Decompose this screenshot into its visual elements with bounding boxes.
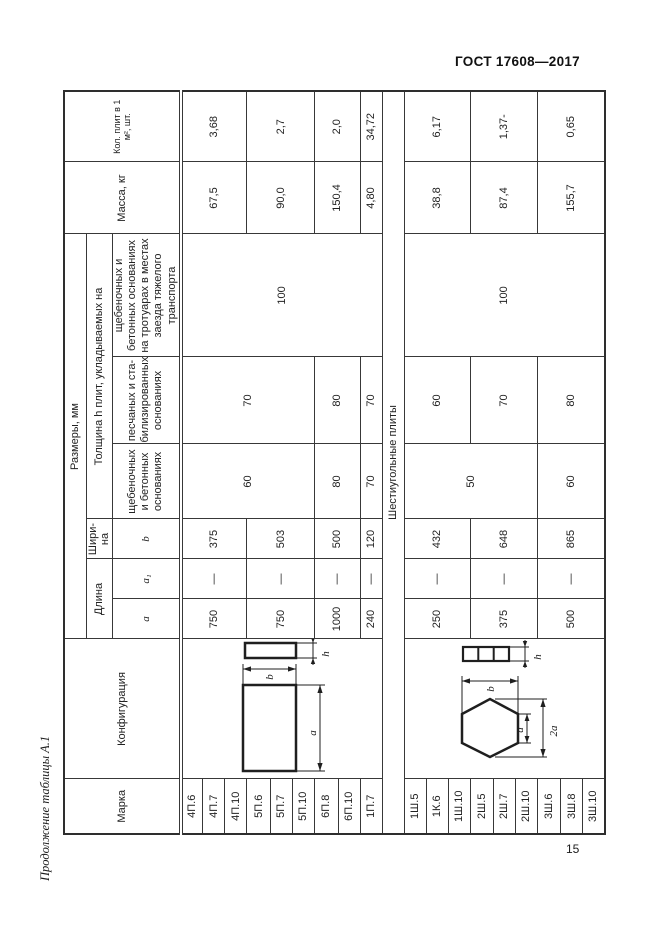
cell-count: 34,72 xyxy=(360,91,382,162)
mark-cell: 1Ш.10 xyxy=(448,779,470,834)
cell-a1: — xyxy=(360,559,382,599)
cell-thick-pesch: 70 xyxy=(360,357,382,444)
section-divider: Шестиугольные плиты xyxy=(382,91,404,834)
header-razmery: Размеры, мм xyxy=(64,234,86,639)
cell-thick-pesch: 60 xyxy=(404,357,470,444)
cell-a: 240 xyxy=(360,599,382,639)
cell-mass: 67,5 xyxy=(181,162,247,234)
cell-a: 750 xyxy=(247,599,315,639)
cell-thick-pesch: 80 xyxy=(537,357,604,444)
mark-cell: 2Ш.5 xyxy=(470,779,493,834)
dim-label-h: h xyxy=(320,651,332,657)
dim-label-a: a xyxy=(514,727,526,733)
cell-count: 2,0 xyxy=(314,91,360,162)
cell-count: 1,37- xyxy=(470,91,537,162)
rect-plate-figure: a b h xyxy=(183,639,379,778)
cell-b: 865 xyxy=(537,519,604,559)
page-number: 15 xyxy=(566,842,579,856)
header-a: a xyxy=(112,599,180,639)
cell-a1: — xyxy=(537,559,604,599)
cell-b: 500 xyxy=(314,519,360,559)
cell-a1: — xyxy=(247,559,315,599)
table-a1: Марка Конфигурация Размеры, мм Масса, кг… xyxy=(63,90,606,835)
header-osn-pesch: песчаных и ста-билизированных основаниях xyxy=(112,357,180,444)
rect-plate-figure-cell: a b h xyxy=(181,639,383,779)
doc-number: ГОСТ 17608—2017 xyxy=(455,54,580,69)
mark-cell: 3Ш.6 xyxy=(537,779,560,834)
cell-mass: 90,0 xyxy=(247,162,315,234)
cell-count: 3,68 xyxy=(181,91,247,162)
page: ГОСТ 17608—2017 Продолжение таблицы А.1 … xyxy=(0,0,661,935)
header-marka: Марка xyxy=(64,779,181,834)
cell-b: 375 xyxy=(181,519,247,559)
dim-label-2a: 2a xyxy=(548,726,560,738)
mark-cell: 1К.6 xyxy=(426,779,448,834)
dim-label-b: b xyxy=(485,686,497,692)
mark-cell: 5П.7 xyxy=(270,779,292,834)
hex-plate-figure-cell: b a 2a xyxy=(404,639,605,779)
mark-cell: 2Ш.7 xyxy=(493,779,515,834)
cell-thick-transport: 100 xyxy=(404,234,605,357)
mark-cell: 4П.7 xyxy=(203,779,225,834)
cell-count: 0,65 xyxy=(537,91,604,162)
header-massa: Масса, кг xyxy=(64,162,181,234)
cell-thick-pesch: 70 xyxy=(181,357,315,444)
cell-thick-pesch: 70 xyxy=(470,357,537,444)
mark-cell: 5П.10 xyxy=(292,779,314,834)
cell-b: 432 xyxy=(404,519,470,559)
mark-cell: 6П.10 xyxy=(338,779,360,834)
mark-cell: 2Ш.10 xyxy=(515,779,537,834)
cell-a1: — xyxy=(470,559,537,599)
cell-a: 500 xyxy=(537,599,604,639)
cell-thick-shcheb: 60 xyxy=(181,444,315,519)
header-a1: a₁ xyxy=(112,559,180,599)
cell-a1: — xyxy=(314,559,360,599)
cell-thick-shcheb: 50 xyxy=(404,444,537,519)
header-config: Конфигурация xyxy=(64,639,181,779)
header-tolshina: Толщина h плит, укладываемых на xyxy=(86,234,112,519)
cell-mass: 4,80 xyxy=(360,162,382,234)
cell-a: 250 xyxy=(404,599,470,639)
cell-b: 120 xyxy=(360,519,382,559)
mark-cell: 3Ш.8 xyxy=(561,779,583,834)
cell-thick-shcheb: 80 xyxy=(314,444,360,519)
header-osn-shcheb: щебеночных и бетонных основаниях xyxy=(112,444,180,519)
mark-cell: 6П.8 xyxy=(314,779,338,834)
mark-cell: 5П.6 xyxy=(247,779,271,834)
cell-b: 503 xyxy=(247,519,315,559)
cell-thick-transport: 100 xyxy=(181,234,383,357)
mark-cell: 4П.10 xyxy=(225,779,247,834)
cell-a1: — xyxy=(404,559,470,599)
header-shirina: Шири-на xyxy=(86,519,112,559)
dim-label-b: b xyxy=(264,674,276,680)
cell-count: 2,7 xyxy=(247,91,315,162)
hex-plate-figure: b a 2a xyxy=(405,639,601,778)
cell-mass: 155,7 xyxy=(537,162,604,234)
header-dlina: Длина xyxy=(86,559,112,639)
header-b: b xyxy=(112,519,180,559)
cell-count: 6,17 xyxy=(404,91,470,162)
cell-mass: 87,4 xyxy=(470,162,537,234)
cell-a1: — xyxy=(181,559,247,599)
cell-thick-shcheb: 70 xyxy=(360,444,382,519)
cell-mass: 150,4 xyxy=(314,162,360,234)
header-osn-transport: щебеночных и бетонных основаниях на трот… xyxy=(112,234,180,357)
table-continuation-caption: Продолжение таблицы А.1 xyxy=(38,736,53,881)
mark-cell: 4П.6 xyxy=(181,779,203,834)
mark-cell: 1Ш.5 xyxy=(404,779,426,834)
cell-thick-shcheb: 60 xyxy=(537,444,604,519)
mark-cell: 3Ш.10 xyxy=(583,779,605,834)
cell-a: 375 xyxy=(470,599,537,639)
rotated-table-container: Марка Конфигурация Размеры, мм Масса, кг… xyxy=(63,92,583,835)
cell-b: 648 xyxy=(470,519,537,559)
cell-a: 1000 xyxy=(314,599,360,639)
dim-label-h: h xyxy=(532,654,544,660)
mark-cell: 1П.7 xyxy=(360,779,382,834)
cell-a: 750 xyxy=(181,599,247,639)
cell-mass: 38,8 xyxy=(404,162,470,234)
header-kol: Кол. плит в 1 м², шт. xyxy=(64,91,181,162)
cell-thick-pesch: 80 xyxy=(314,357,360,444)
dim-label-a: a xyxy=(307,730,319,736)
